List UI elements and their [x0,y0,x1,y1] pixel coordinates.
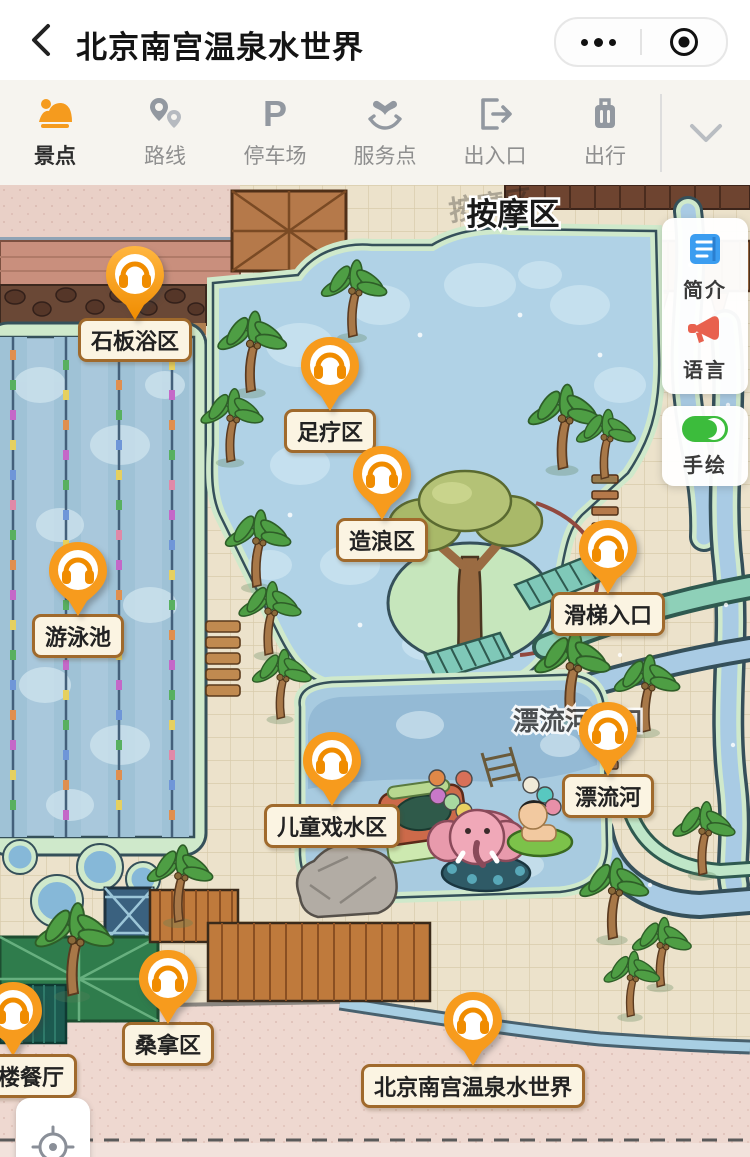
toolbar-collapse-button[interactable] [662,80,750,185]
svg-text:P: P [263,96,287,132]
tab-label: 出行 [584,140,626,170]
category-toolbar: 景点 路线 P 停车场 [0,80,750,185]
tab-service-points[interactable]: 服务点 [330,80,440,185]
category-tabs: 景点 路线 P 停车场 [0,80,660,185]
poi-marker-park-main[interactable]: 北京南宫温泉水世界 [361,990,585,1108]
exit-entrance-icon [475,96,515,132]
scenic-spot-icon [35,96,75,132]
tab-scenic-spots[interactable]: 景点 [0,80,110,185]
audio-pin-icon [575,700,641,778]
map-tools-card: 简介 语言 [662,218,748,394]
poi-label: 石板浴区 [78,318,192,362]
page-title: 北京南宫温泉水世界 [76,22,364,67]
poi-marker-sauna-area[interactable]: 桑拿区 [122,948,214,1066]
poi-label: 造浪区 [336,518,428,562]
tab-label: 出入口 [464,140,527,170]
parking-icon: P [255,96,295,132]
tab-routes[interactable]: 路线 [110,80,220,185]
audio-pin-icon [0,980,46,1058]
language-button[interactable]: 语言 [683,313,727,383]
header: 北京南宫温泉水世界 [0,0,750,80]
chevron-left-icon [24,20,60,60]
audio-pin-icon [45,540,111,618]
miniprogram-capsule [554,17,728,67]
poi-marker-foot-therapy-area[interactable]: 足疗区 [284,335,376,453]
intro-label: 简介 [683,274,727,303]
tab-label: 景点 [34,140,76,170]
toggle-on-icon [680,414,730,444]
audio-pin-icon [299,730,365,808]
home-exit-button[interactable] [642,19,726,65]
tab-exits[interactable]: 出入口 [440,80,550,185]
more-dots-icon [581,38,616,47]
more-menu-button[interactable] [556,19,640,65]
audio-pin-icon [575,518,641,596]
record-circle-icon [668,26,700,58]
area-label-massage: 按摩区 [467,197,560,232]
poi-label: 桑拿区 [122,1022,214,1066]
locate-me-button[interactable] [16,1098,90,1157]
poi-marker-swimming-pool[interactable]: 游泳池 [32,540,124,658]
handdrawn-toggle[interactable]: 手绘 [680,414,730,478]
language-label: 语言 [683,354,727,383]
tab-parking[interactable]: P 停车场 [220,80,330,185]
service-heart-icon [365,96,405,132]
poi-marker-lazy-river[interactable]: 漂流河 [562,700,654,818]
audio-pin-icon [102,244,168,322]
back-button[interactable] [24,20,60,60]
luggage-icon [585,96,625,132]
poi-marker-stone-bath-area[interactable]: 石板浴区 [78,244,192,362]
tab-label: 服务点 [354,140,417,170]
audio-pin-icon [349,444,415,522]
route-pins-icon [145,96,185,132]
poi-marker-slide-entrance[interactable]: 滑梯入口 [551,518,665,636]
handdrawn-card: 手绘 [662,406,748,486]
audio-pin-icon [135,948,201,1026]
poi-label: 北京南宫温泉水世界 [361,1064,585,1108]
poi-label: 滑梯入口 [551,592,665,636]
intro-button[interactable]: 简介 [683,229,727,303]
crosshair-locate-icon [31,1125,75,1157]
poi-label: 楼餐厅 [0,1054,77,1098]
megaphone-icon [684,313,726,349]
tab-travel[interactable]: 出行 [550,80,660,185]
chevron-down-icon [684,118,728,148]
audio-pin-icon [297,335,363,413]
poi-label: 漂流河 [562,774,654,818]
poi-marker-restaurant[interactable]: 楼餐厅 [0,980,59,1098]
tab-label: 路线 [144,140,186,170]
app-window: 北京南宫温泉水世界 景点 [0,0,750,1157]
poi-marker-kids-water-area[interactable]: 儿童戏水区 [264,730,400,848]
poi-marker-wave-pool-area[interactable]: 造浪区 [336,444,428,562]
intro-document-icon [685,229,725,269]
audio-pin-icon [440,990,506,1068]
handdrawn-label: 手绘 [683,449,727,478]
tab-label: 停车场 [244,140,307,170]
poi-label: 儿童戏水区 [264,804,400,848]
poi-label: 游泳池 [32,614,124,658]
